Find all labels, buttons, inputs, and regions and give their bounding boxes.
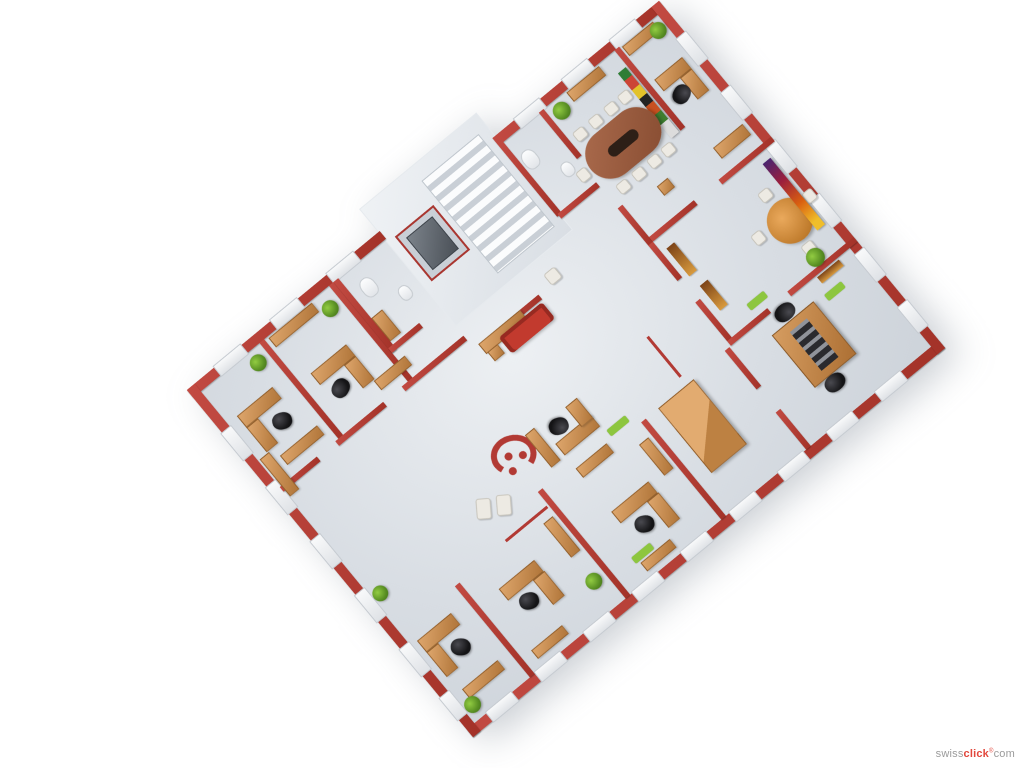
office-chair	[451, 638, 471, 655]
watermark-part2: click	[964, 748, 989, 760]
watermark-part1: swiss	[936, 748, 964, 760]
watermark-part3: com	[994, 748, 1015, 760]
floor-plan-canvas: swissclick®com	[0, 0, 1024, 768]
floor-plan	[187, 1, 945, 738]
watermark: swissclick®com	[936, 748, 1015, 760]
lounge-chair	[496, 494, 513, 516]
lounge-chair	[475, 498, 492, 520]
